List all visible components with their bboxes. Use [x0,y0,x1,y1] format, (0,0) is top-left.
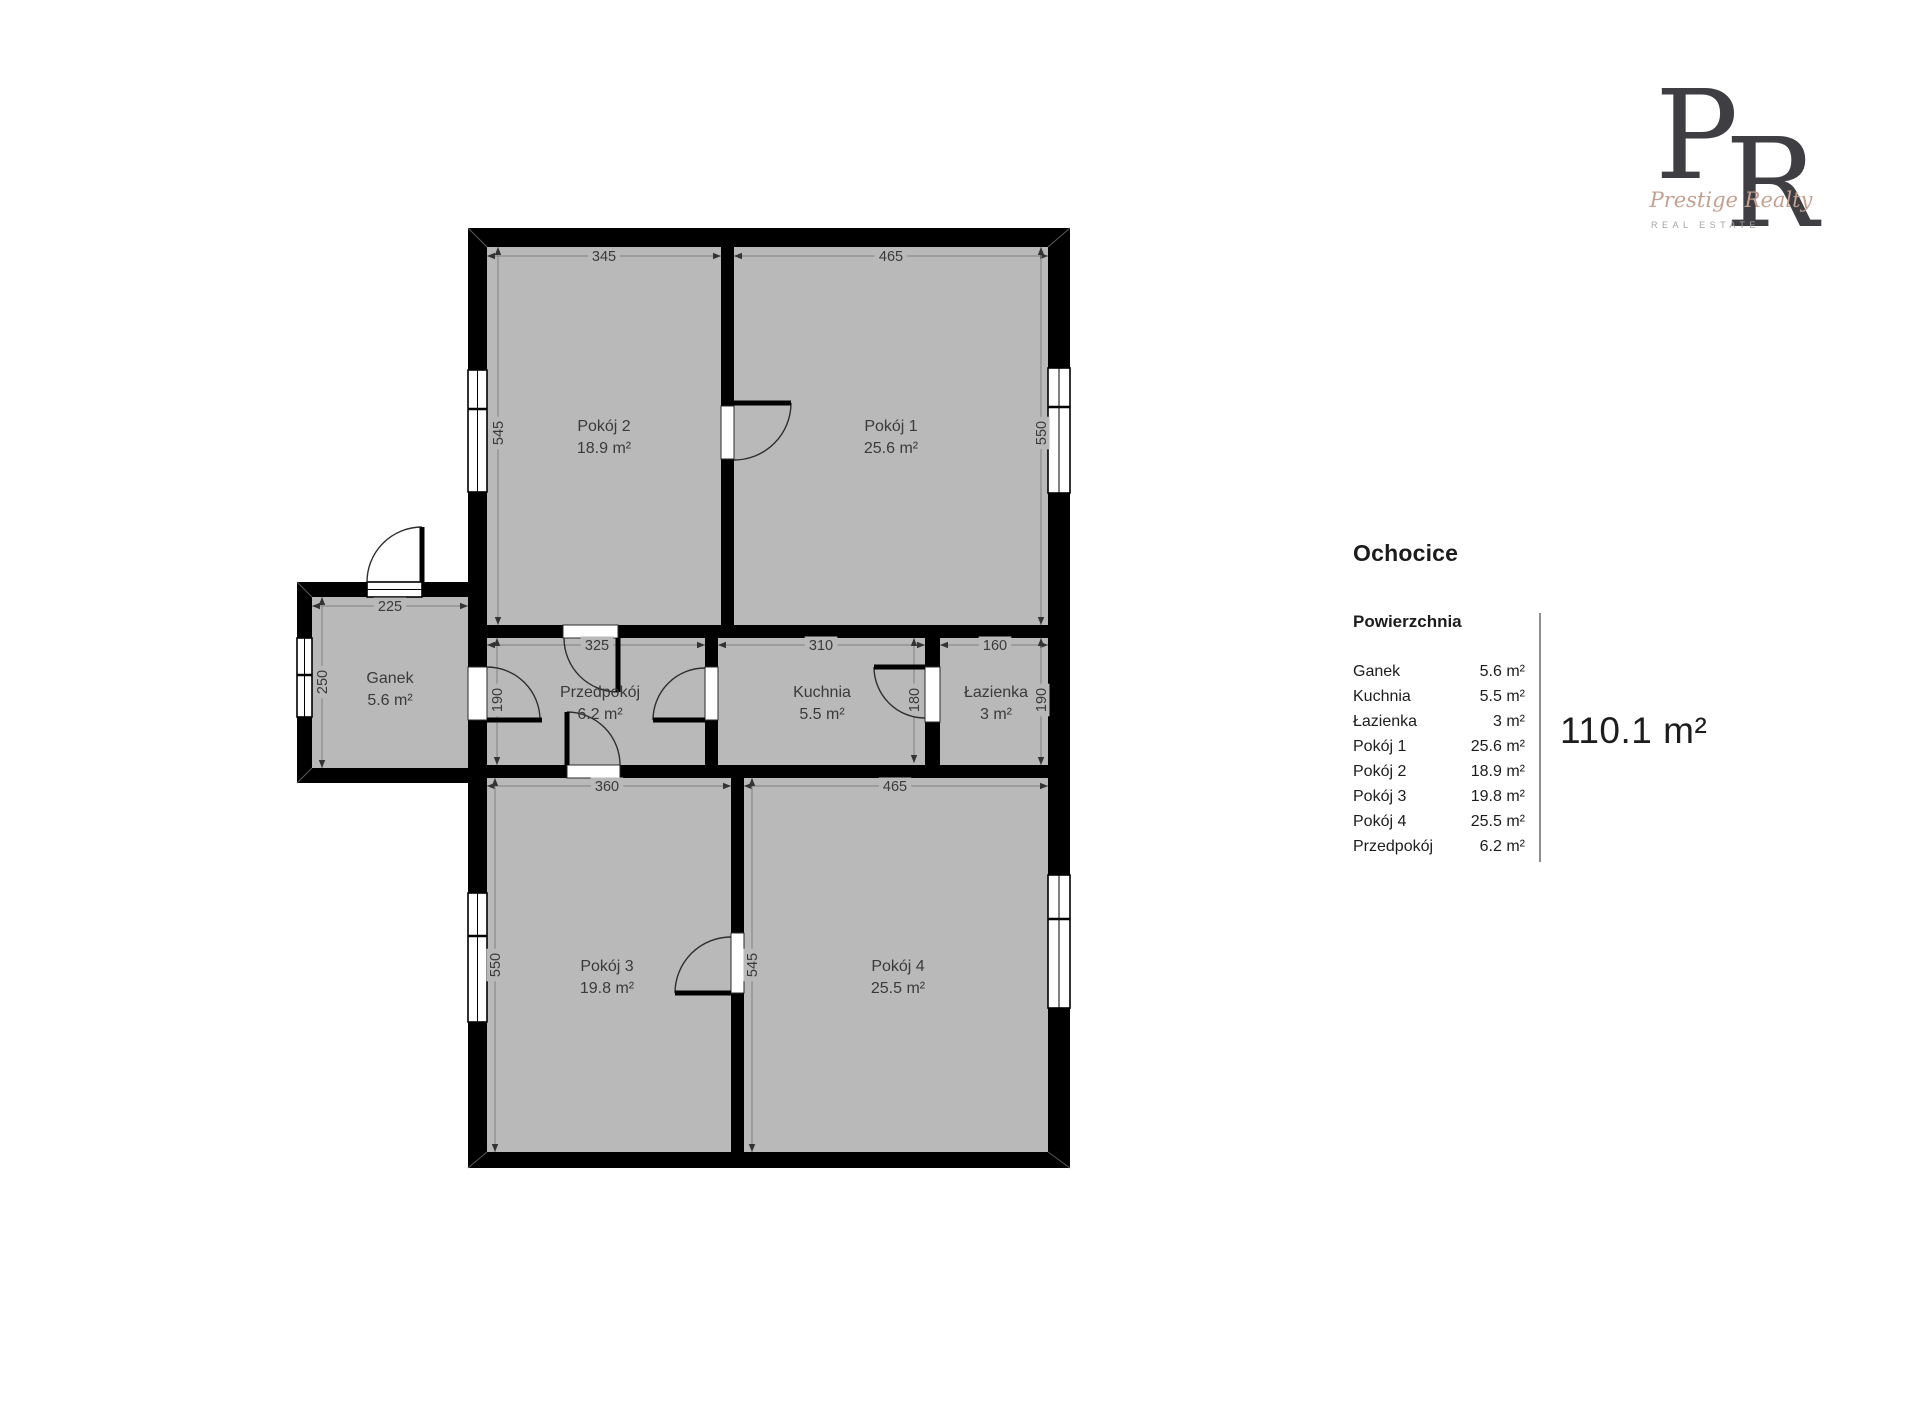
dim-label: 190 [490,688,506,712]
legend-room-name: Ganek [1353,659,1400,684]
room-area-label: 19.8 m² [580,980,635,997]
page: 3454652253253101603604655455502501901801… [0,0,1920,1405]
legend-divider [1539,613,1541,862]
room-area-label: 18.9 m² [577,440,632,457]
door-opening [468,667,487,720]
floor-plan: 3454652253253101603604655455502501901801… [0,0,1920,1405]
legend-row: Pokój 425.5 m² [1353,809,1525,834]
room-area-label: 5.5 m² [799,706,845,723]
door-opening [925,667,940,722]
dim-label: 325 [585,638,609,654]
legend: Powierzchnia Ganek5.6 m²Kuchnia5.5 m²Łaz… [1353,612,1525,859]
wall [468,1152,1070,1168]
legend-row: Przedpokój6.2 m² [1353,834,1525,859]
legend-room-name: Pokój 2 [1353,759,1406,784]
dim-label: 345 [592,249,616,265]
agency-logo: P R Prestige Realty REAL ESTATE [1645,80,1830,270]
legend-row: Kuchnia5.5 m² [1353,684,1525,709]
legend-room-name: Kuchnia [1353,684,1411,709]
wall [297,768,468,783]
dim-label: 250 [315,670,331,694]
dim-label: 360 [595,779,619,795]
logo-script-text: Prestige Realty [1647,188,1815,212]
room-label: Łazienka [964,684,1028,701]
room-label: Kuchnia [793,684,851,701]
door-arc [367,527,422,582]
logo-subtitle: REAL ESTATE [1651,220,1760,230]
room-area-label: 25.5 m² [871,980,926,997]
legend-room-name: Pokój 3 [1353,784,1406,809]
legend-room-area: 5.6 m² [1480,659,1525,684]
legend-room-area: 25.5 m² [1471,809,1525,834]
legend-row: Ganek5.6 m² [1353,659,1525,684]
dim-label: 160 [983,638,1007,654]
room-label: Pokój 1 [864,418,917,435]
dim-label: 190 [1034,688,1050,712]
room-label: Pokój 3 [580,958,633,975]
dim-label: 550 [488,953,504,977]
room-area-label: 3 m² [980,706,1013,723]
legend-row: Pokój 125.6 m² [1353,734,1525,759]
door-opening [731,933,744,993]
legend-room-name: Łazienka [1353,709,1417,734]
door-opening [705,667,718,720]
room-area-label: 5.6 m² [367,692,413,709]
room-label: Pokój 4 [871,958,924,975]
dim-label: 310 [809,638,833,654]
legend-room-area: 5.5 m² [1480,684,1525,709]
plan-title: Ochocice [1353,540,1458,567]
legend-room-area: 6.2 m² [1480,834,1525,859]
dim-label: 465 [879,249,903,265]
room-label: Przedpokój [560,684,640,701]
dim-label: 465 [883,779,907,795]
legend-row: Łazienka3 m² [1353,709,1525,734]
dim-label: 225 [378,599,402,615]
legend-room-name: Pokój 1 [1353,734,1406,759]
room-label: Pokój 2 [577,418,630,435]
wall [468,228,1070,247]
door-opening [563,625,618,638]
legend-room-area: 19.8 m² [1471,784,1525,809]
legend-row: Pokój 218.9 m² [1353,759,1525,784]
room-label: Ganek [366,670,414,687]
dim-label: 545 [745,953,761,977]
legend-room-area: 3 m² [1493,709,1525,734]
total-area: 110.1 m² [1560,710,1707,752]
legend-room-name: Pokój 4 [1353,809,1406,834]
dim-label: 180 [907,688,923,712]
legend-heading: Powierzchnia [1353,612,1525,632]
legend-room-name: Przedpokój [1353,834,1433,859]
door-opening [721,406,734,459]
legend-row: Pokój 319.8 m² [1353,784,1525,809]
legend-room-area: 25.6 m² [1471,734,1525,759]
legend-room-area: 18.9 m² [1471,759,1525,784]
room-area-label: 25.6 m² [864,440,919,457]
dim-label: 550 [1034,421,1050,445]
door-opening [567,765,620,778]
room-area-label: 6.2 m² [577,706,623,723]
dim-label: 545 [491,421,507,445]
legend-rows: Ganek5.6 m²Kuchnia5.5 m²Łazienka3 m²Pokó… [1353,659,1525,859]
